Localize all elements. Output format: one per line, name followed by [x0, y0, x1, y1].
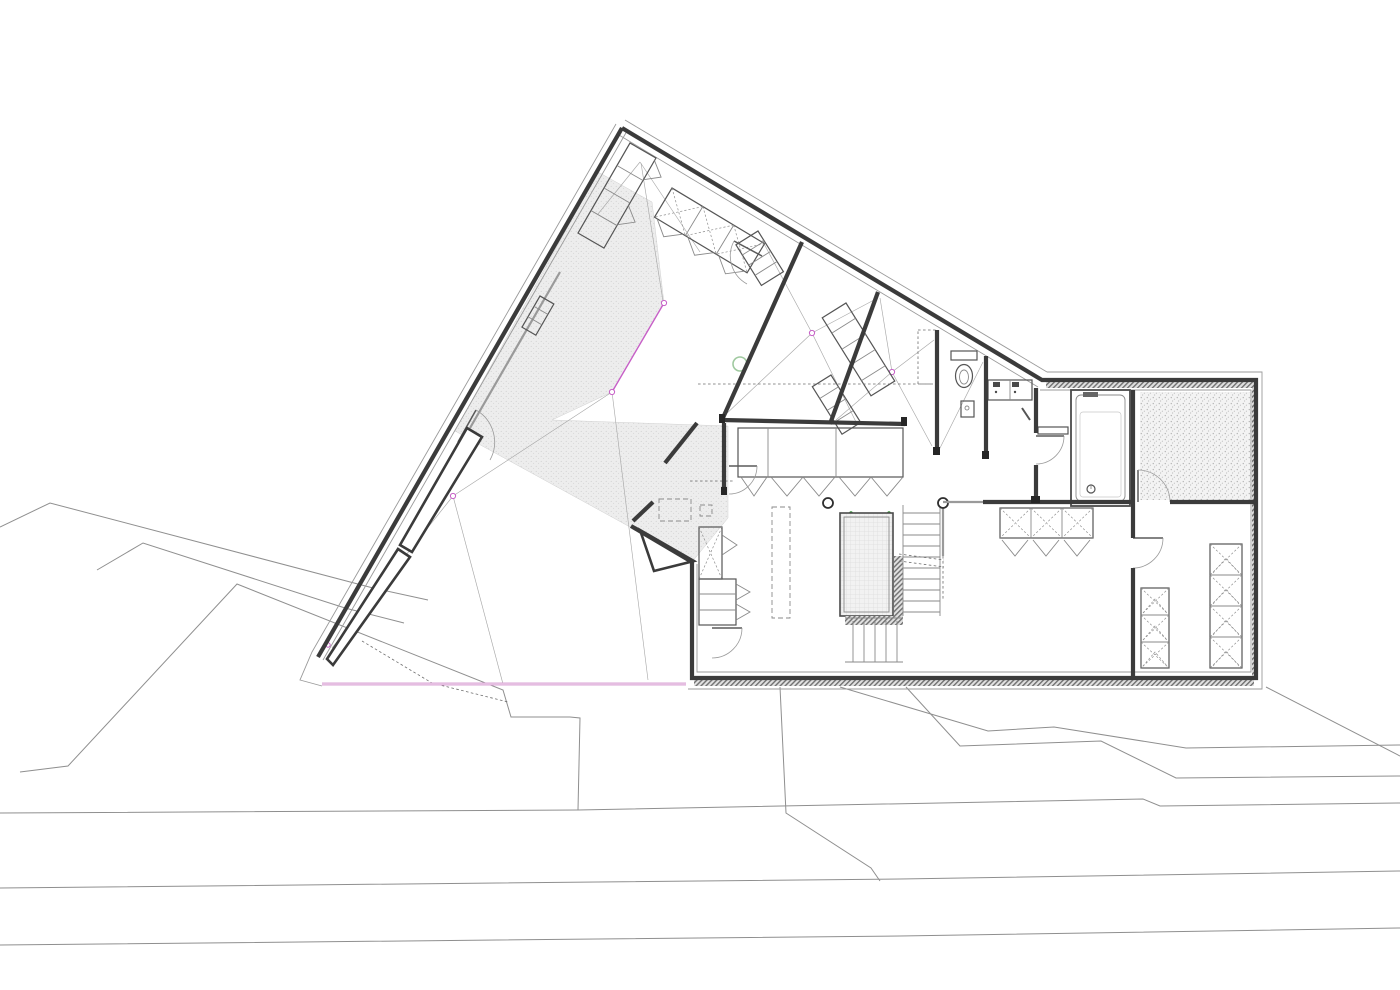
terrace-step-line-2 — [906, 687, 1400, 778]
corridor-wardrobe-row — [738, 428, 903, 496]
bathroom-door — [1036, 436, 1064, 464]
toilet-paper-holder — [961, 401, 974, 417]
ridge-node — [661, 300, 666, 305]
road-edge-3 — [0, 928, 1400, 945]
wardrobe-room-door — [1133, 538, 1163, 568]
wall-end-jambs — [719, 414, 1040, 503]
path-from-house — [780, 687, 880, 881]
slope-contour — [20, 584, 580, 810]
double-sink — [988, 380, 1032, 400]
driveway-edge-upper — [0, 503, 428, 600]
apex-room-door — [730, 241, 762, 284]
glass-floor-panel — [840, 513, 893, 616]
ridge-node — [609, 389, 614, 394]
wardrobe-stack-right — [1210, 544, 1242, 668]
living-wardrobe-xrow — [1000, 508, 1093, 556]
bathtub — [1071, 390, 1130, 506]
ridge-node — [450, 493, 455, 498]
bath-shelf — [1022, 408, 1068, 434]
gravel-room-fill — [1140, 392, 1252, 500]
void-stipple-region — [455, 172, 728, 562]
road-edge-2 — [0, 871, 1400, 888]
site-context-lines — [0, 503, 1400, 945]
column — [823, 498, 833, 508]
dining-table-dashed — [772, 507, 790, 618]
wardrobe-stack-left — [1141, 588, 1169, 668]
exterior-walls — [318, 128, 1256, 678]
road-edge-1 — [0, 799, 1400, 813]
drawing-sheet — [0, 0, 1400, 990]
living-south-door — [712, 628, 742, 658]
tip-dashed-line-2 — [432, 683, 508, 702]
floor-plan — [0, 0, 1400, 990]
exterior-outline — [300, 120, 1262, 689]
ridge-node — [809, 330, 814, 335]
shower-dashed — [918, 330, 936, 384]
terrace-step-line-1 — [840, 687, 1400, 748]
